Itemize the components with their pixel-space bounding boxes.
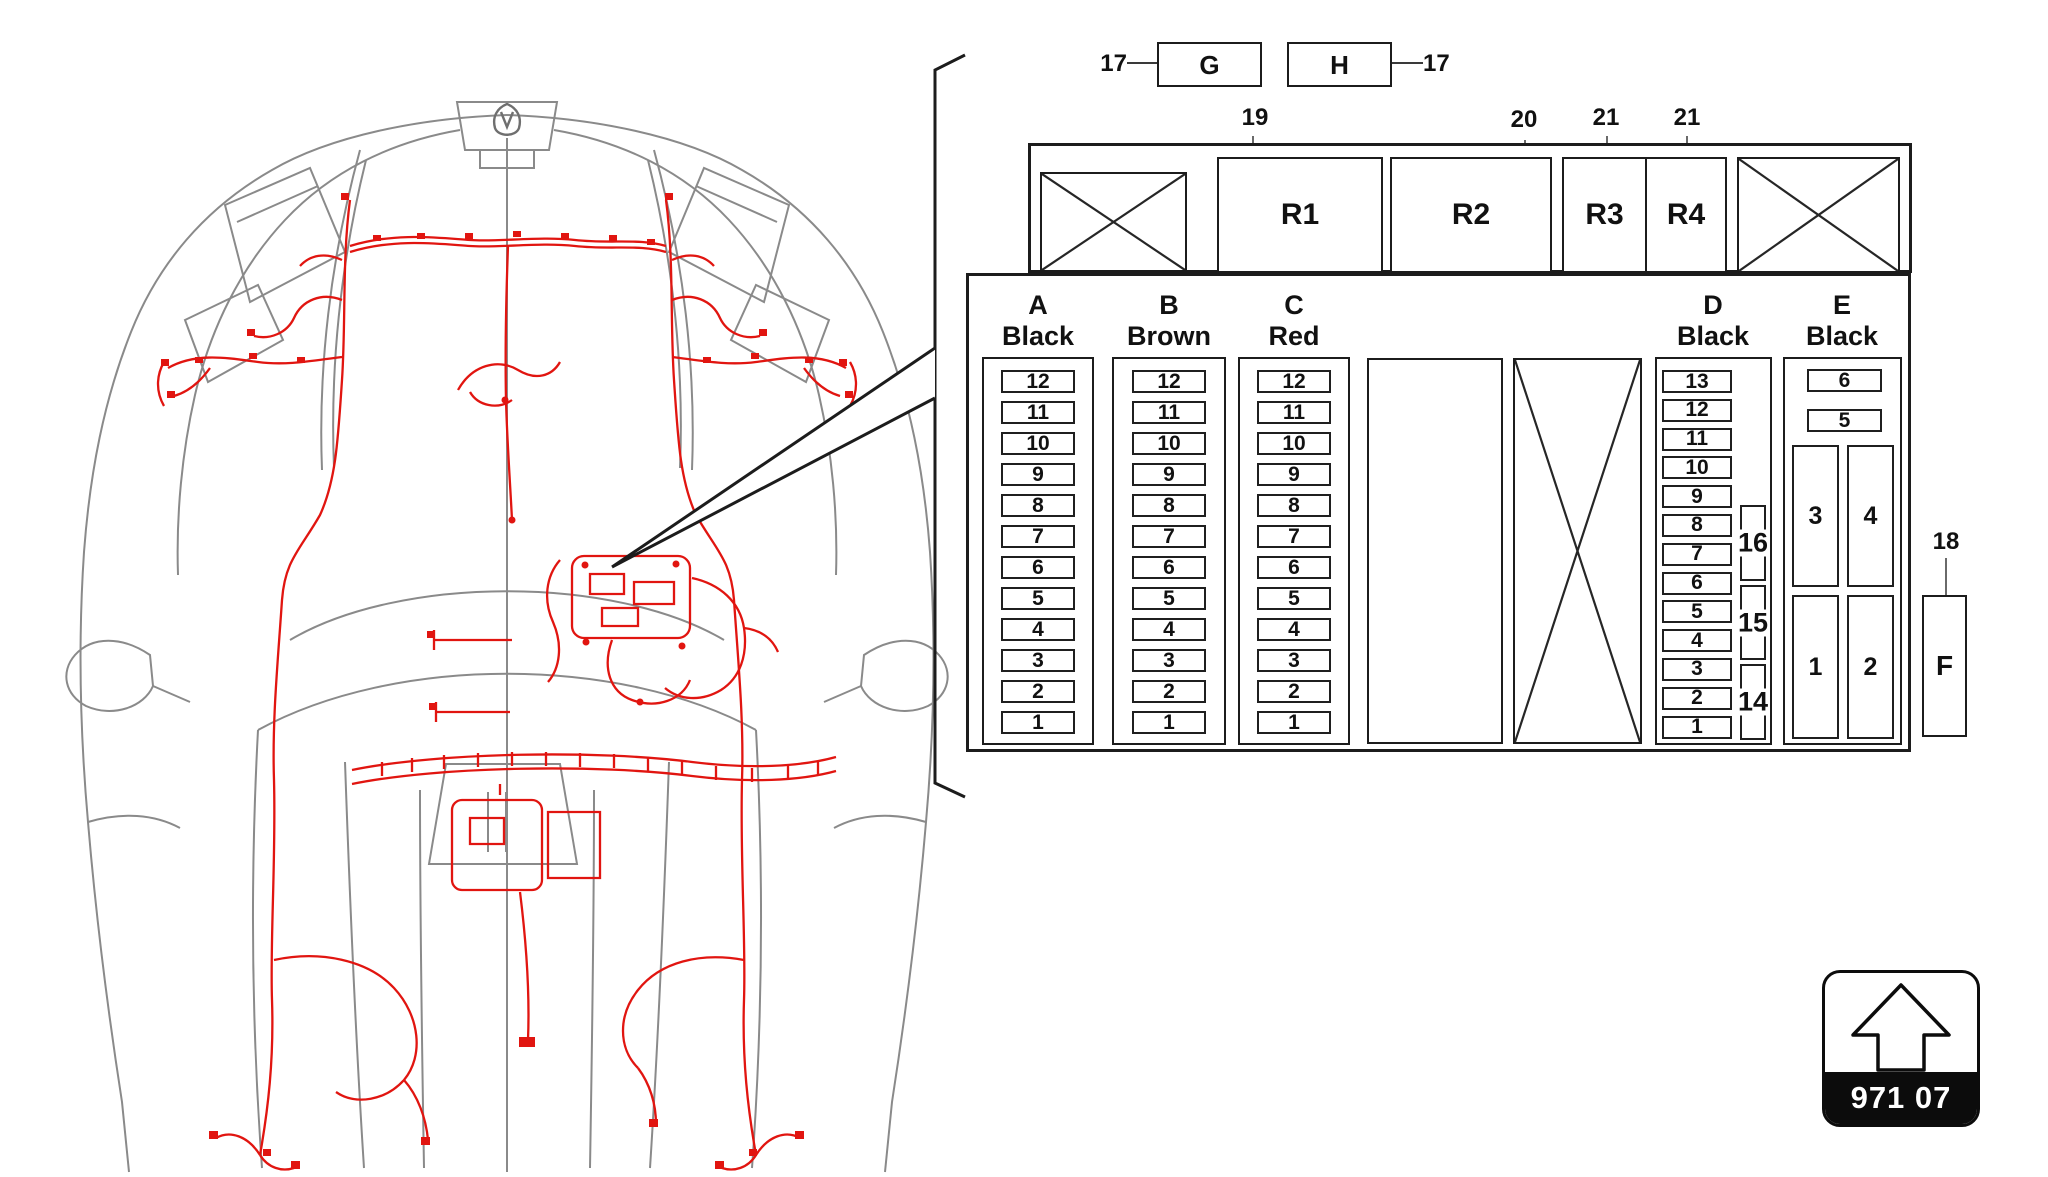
fuse-slot-b: 2: [1132, 680, 1206, 703]
fuse-slot-d-label: 11: [1686, 427, 1708, 451]
fuse-slot-b: 9: [1132, 463, 1206, 486]
fuse-slot-c: 2: [1257, 680, 1331, 703]
fuse-slot-d: 6: [1662, 572, 1732, 595]
fuse-slot-c-label: 12: [1282, 370, 1305, 394]
fuse-slot-d-label: 1: [1691, 715, 1703, 739]
fuse-slot-d: 10: [1662, 456, 1732, 479]
fuse-slot-a: 8: [1001, 494, 1075, 517]
fuse-column-d: 13121110987654321 161514: [1655, 357, 1772, 745]
fuse-slot-d: 11: [1662, 428, 1732, 451]
fuse-slot-b: 11: [1132, 401, 1206, 424]
fuse-slot-c: 1: [1257, 711, 1331, 734]
car-nose-emblem: [494, 104, 520, 135]
fuse-slot-b-label: 5: [1163, 587, 1175, 611]
fuse-slot-d: 4: [1662, 629, 1732, 652]
fuse-slot-a: 9: [1001, 463, 1075, 486]
fuse-slot-c: 8: [1257, 494, 1331, 517]
fuse-slot-b: 4: [1132, 618, 1206, 641]
fuse-slot-b-label: 9: [1163, 463, 1175, 487]
fuse-slot-d: 2: [1662, 687, 1732, 710]
callout-pointer-lines: [612, 348, 935, 567]
fuse-slot-d: 12: [1662, 399, 1732, 422]
relay-slot-r1: R1: [1217, 157, 1383, 273]
e-relay-slot-4: 4: [1847, 445, 1894, 587]
e-relay-slot-2: 2: [1847, 595, 1894, 739]
relay-slot-blanked-left: [1040, 172, 1187, 272]
fuse-column-e: 6 5 3 4 1 2: [1783, 357, 1902, 745]
fuse-slot-c-label: 8: [1288, 494, 1300, 518]
fuse-list-a: 121110987654321: [984, 370, 1092, 742]
fuse-slot-a: 6: [1001, 556, 1075, 579]
crossed-out-x-icon: [1515, 360, 1640, 742]
fuse-slot-c-label: 1: [1288, 711, 1300, 735]
fuse-slot-c-label: 3: [1288, 649, 1300, 673]
fuse-slot-d: 5: [1662, 600, 1732, 623]
fuse-slot-a-label: 1: [1032, 711, 1044, 735]
fuse-slot-d-label: 2: [1691, 686, 1703, 710]
fuse-slot-a-label: 10: [1026, 432, 1049, 456]
fuse-slot-b: 1: [1132, 711, 1206, 734]
side-slot-label: 16: [1737, 529, 1769, 556]
fuse-slot-c-label: 2: [1288, 680, 1300, 704]
fuse-slot-d: 1: [1662, 716, 1732, 739]
fuse-slot-c: 3: [1257, 649, 1331, 672]
pointer-label-21-r4: 21: [1663, 104, 1711, 132]
fuse-slot-a: 10: [1001, 432, 1075, 455]
fuse-slot-d-label: 6: [1691, 571, 1703, 595]
pointer-label-18: 18: [1922, 528, 1970, 556]
fuse-slot-d: 3: [1662, 658, 1732, 681]
connector-g-label: G: [1159, 44, 1260, 85]
badge-code-band: 971 07: [1825, 1072, 1977, 1124]
fuse-column-a: 121110987654321: [982, 357, 1094, 745]
fuse-slot-c: 9: [1257, 463, 1331, 486]
callout-bracket: [935, 55, 965, 797]
crossed-out-x-icon: [1739, 159, 1898, 271]
fuse-slot-b-label: 4: [1163, 618, 1175, 642]
fuse-slot-c: 12: [1257, 370, 1331, 393]
fuse-slot-b: 3: [1132, 649, 1206, 672]
fuse-slot-a: 11: [1001, 401, 1075, 424]
fuse-slot-b: 6: [1132, 556, 1206, 579]
fuse-slot-d-label: 8: [1691, 513, 1703, 537]
fuse-slot-a: 4: [1001, 618, 1075, 641]
fuse-slot-a-label: 11: [1027, 401, 1049, 425]
fuse-slot-a: 12: [1001, 370, 1075, 393]
fuse-slot-c-label: 11: [1283, 401, 1305, 425]
fuse-slot-c-label: 6: [1288, 556, 1300, 580]
fuse-slot-a-label: 12: [1026, 370, 1049, 394]
leader-line-17-right: [1392, 62, 1423, 64]
fuse-slot-b: 8: [1132, 494, 1206, 517]
fuse-slot-a-label: 5: [1032, 587, 1044, 611]
relay-slot-r3-label: R3: [1564, 159, 1645, 271]
fuse-slot-c-label: 4: [1288, 618, 1300, 642]
fuse-slot-b-label: 7: [1163, 525, 1175, 549]
fuse-slot-d-label: 7: [1691, 542, 1703, 566]
fuse-slot-b-label: 2: [1163, 680, 1175, 704]
fuse-slot-a-label: 3: [1032, 649, 1044, 673]
pointer-label-17-left: 17: [1083, 50, 1127, 78]
fuse-slot-a: 3: [1001, 649, 1075, 672]
fuse-slot-c-label: 9: [1288, 463, 1300, 487]
fuse-slot-a: 5: [1001, 587, 1075, 610]
side-slot: 16: [1740, 505, 1766, 581]
fuse-slot-c: 10: [1257, 432, 1331, 455]
fuse-slot-a: 2: [1001, 680, 1075, 703]
e-mini-fuse-5: 5: [1807, 409, 1882, 432]
pointer-label-20: 20: [1500, 106, 1548, 134]
relay-slot-r4-label: R4: [1647, 159, 1725, 271]
connector-h-label: H: [1289, 44, 1390, 85]
fuse-slot-d-label: 9: [1691, 485, 1703, 509]
fuse-slot-d-label: 10: [1685, 456, 1708, 480]
fuse-slot-b-label: 1: [1163, 711, 1175, 735]
up-arrow-icon: [1825, 975, 1977, 1075]
fuse-slot-c: 7: [1257, 525, 1331, 548]
fuse-slot-c: 11: [1257, 401, 1331, 424]
fuse-slot-d: 8: [1662, 514, 1732, 537]
fuse-slot-b-label: 10: [1157, 432, 1180, 456]
pointer-label-17-right: 17: [1423, 50, 1467, 78]
fuse-slot-a-label: 8: [1032, 494, 1044, 518]
e-relay-slot-1: 1: [1792, 595, 1839, 739]
fuse-slot-c-label: 7: [1288, 525, 1300, 549]
e-relay-slot-3: 3: [1792, 445, 1839, 587]
fuse-column-b: 121110987654321: [1112, 357, 1226, 745]
column-c-letter: C: [1214, 290, 1374, 320]
relay-slot-blanked-right: [1737, 157, 1900, 273]
crossed-out-slot-box: [1513, 358, 1642, 744]
fuse-slot-a-label: 2: [1032, 680, 1044, 704]
fuse-slot-c-label: 10: [1282, 432, 1305, 456]
fuse-slot-a-label: 7: [1032, 525, 1044, 549]
fuse-slot-a-label: 9: [1032, 463, 1044, 487]
wiring-location-diagram: 17 G H 17 19 20 21 21 R1 R2 R3 R4 A Blac…: [0, 0, 2048, 1177]
side-slot-label: 14: [1737, 689, 1769, 716]
fuse-slot-b: 7: [1132, 525, 1206, 548]
fuse-list-c: 121110987654321: [1240, 370, 1348, 742]
fuse-slot-c: 5: [1257, 587, 1331, 610]
crossed-out-x-icon: [1042, 174, 1185, 270]
fuse-slot-a-label: 4: [1032, 618, 1044, 642]
empty-slot-box: [1367, 358, 1503, 744]
fuse-slot-c: 6: [1257, 556, 1331, 579]
fuse-slot-b: 12: [1132, 370, 1206, 393]
connector-h-box: H: [1287, 42, 1392, 87]
relay-slot-r2: R2: [1390, 157, 1552, 273]
pointer-label-19: 19: [1231, 104, 1279, 132]
fuse-slot-b-label: 12: [1157, 370, 1180, 394]
fuse-slot-b-label: 6: [1163, 556, 1175, 580]
side-slot-strip: 161514: [1740, 505, 1766, 740]
column-c-color: Red: [1214, 321, 1374, 351]
e-mini-fuse-6: 6: [1807, 369, 1882, 392]
side-slot: 14: [1740, 664, 1766, 740]
manual-group-badge: 971 07: [1822, 970, 1980, 1127]
fuse-slot-c: 4: [1257, 618, 1331, 641]
fuse-slot-a-label: 6: [1032, 556, 1044, 580]
fuse-slot-d-label: 3: [1691, 657, 1703, 681]
fuse-slot-d-label: 5: [1691, 600, 1703, 624]
fuse-slot-d: 9: [1662, 485, 1732, 508]
fuse-slot-d-label: 13: [1685, 370, 1708, 394]
fuse-column-c: 121110987654321: [1238, 357, 1350, 745]
fuse-slot-a: 7: [1001, 525, 1075, 548]
external-slot-f: F: [1922, 595, 1967, 737]
fuse-slot-d: 7: [1662, 543, 1732, 566]
pointer-label-21-r3: 21: [1582, 104, 1630, 132]
relay-slot-r3-r4: R3 R4: [1562, 157, 1727, 273]
connector-g-box: G: [1157, 42, 1262, 87]
fuse-list-b: 121110987654321: [1114, 370, 1224, 742]
fuse-slot-b-label: 3: [1163, 649, 1175, 673]
fuse-slot-a: 1: [1001, 711, 1075, 734]
fuse-slot-d: 13: [1662, 370, 1732, 393]
fuse-slot-b-label: 8: [1163, 494, 1175, 518]
column-e-letter: E: [1762, 290, 1922, 320]
fuse-slot-d-label: 4: [1691, 629, 1703, 653]
fuse-slot-b-label: 11: [1158, 401, 1180, 425]
fuse-slot-b: 5: [1132, 587, 1206, 610]
leader-line-17-left: [1127, 62, 1157, 64]
side-slot: 15: [1740, 585, 1766, 661]
fuse-slot-c-label: 5: [1288, 587, 1300, 611]
column-e-color: Black: [1762, 321, 1922, 351]
fuse-slot-b: 10: [1132, 432, 1206, 455]
side-slot-label: 15: [1737, 609, 1769, 636]
fuse-slot-d-label: 12: [1685, 398, 1708, 422]
